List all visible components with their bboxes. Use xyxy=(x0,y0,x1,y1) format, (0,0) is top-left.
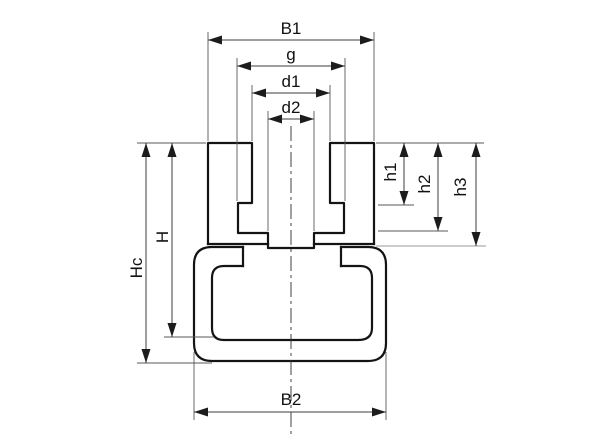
arrow-right-icon xyxy=(360,36,374,45)
channel-outer-contour xyxy=(194,247,386,361)
dim-left-group: Hc H xyxy=(127,143,214,363)
dim-right-group: h1 h2 h3 xyxy=(376,143,486,246)
dim-d1-label: d1 xyxy=(282,72,301,91)
arrow-up-icon xyxy=(142,143,151,157)
arrow-up-icon xyxy=(400,143,409,157)
dim-g-label: g xyxy=(286,45,295,64)
dim-h-label: H xyxy=(153,231,172,243)
dim-h2-label: h2 xyxy=(415,175,434,194)
dim-h1-label: h1 xyxy=(381,163,400,182)
dim-d2-label: d2 xyxy=(282,98,301,117)
arrow-down-icon xyxy=(142,349,151,363)
dim-hc: Hc xyxy=(127,143,151,363)
arrow-up-icon xyxy=(434,143,443,157)
arrow-right-icon xyxy=(300,115,314,124)
arrow-left-icon xyxy=(237,62,251,71)
arrow-left-icon xyxy=(208,36,222,45)
arrow-right-icon xyxy=(331,62,345,71)
dim-hc-label: Hc xyxy=(127,257,146,278)
drawing-canvas: B1 g d1 d2 Hc xyxy=(0,0,600,448)
arrow-up-icon xyxy=(472,143,481,157)
arrow-down-icon xyxy=(472,232,481,246)
channel-slot-lips xyxy=(243,247,341,266)
dim-h3-label: h3 xyxy=(451,178,470,197)
dim-h2: h2 xyxy=(415,143,443,231)
dim-h3: h3 xyxy=(451,143,481,246)
arrow-down-icon xyxy=(434,217,443,231)
arrow-right-icon xyxy=(316,89,330,98)
arrow-down-icon xyxy=(400,191,409,205)
channel-inner-contour xyxy=(212,266,372,340)
dim-g: g xyxy=(237,45,345,201)
dim-h: H xyxy=(153,143,177,337)
channel-profile xyxy=(194,247,386,361)
dim-b2-label: B2 xyxy=(281,390,302,409)
dim-b1-label: B1 xyxy=(281,19,302,38)
arrow-right-icon xyxy=(372,408,386,417)
arrow-left-icon xyxy=(252,89,266,98)
arrow-down-icon xyxy=(168,323,177,337)
cross-section-drawing: B1 g d1 d2 Hc xyxy=(0,0,600,448)
arrow-left-icon xyxy=(194,408,208,417)
arrow-left-icon xyxy=(268,115,282,124)
arrow-up-icon xyxy=(168,143,177,157)
dim-h1: h1 xyxy=(381,143,409,205)
dim-b2: B2 xyxy=(194,352,386,420)
